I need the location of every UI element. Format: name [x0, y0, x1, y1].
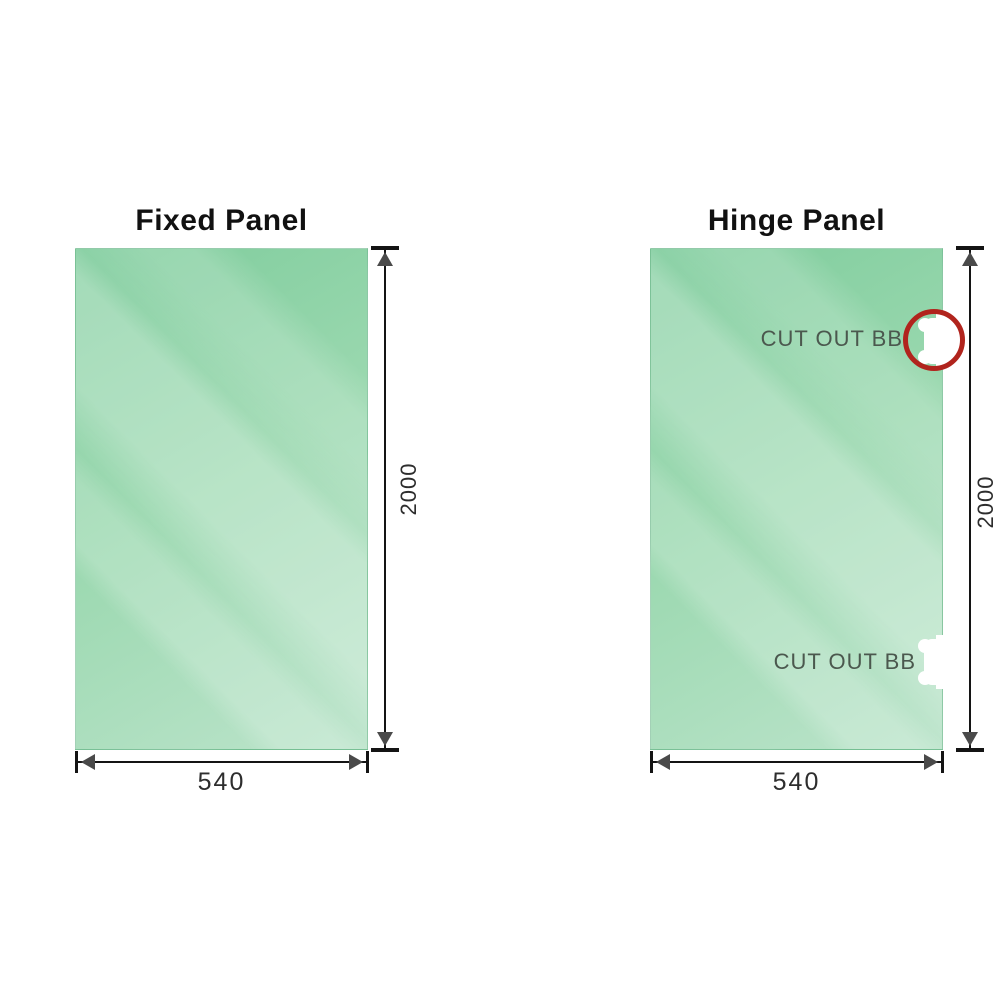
shower-panel-diagram: Fixed Panel 2000 540 Hinge Panel CUT OUT…: [0, 0, 1000, 1000]
hinge-height-dimension-value: 2000: [973, 474, 999, 530]
fixed-height-bottom-tick: [371, 748, 399, 752]
hinge-height-bottom-tick: [956, 748, 984, 752]
hinge-cutout-bottom: [918, 635, 944, 689]
fixed-panel-glass: [75, 248, 368, 750]
hinge-cutout-bottom-bump-upper: [918, 639, 932, 653]
fixed-height-top-tick: [371, 246, 399, 250]
cutout-label-bottom: CUT OUT BB: [706, 649, 916, 675]
cutout-highlight-ring-icon: [903, 309, 965, 371]
fixed-width-dimension-line: [77, 761, 367, 763]
hinge-cutout-bottom-bump-lower: [918, 671, 932, 685]
hinge-height-top-tick: [956, 246, 984, 250]
hinge-panel-title: Hinge Panel: [650, 203, 943, 239]
hinge-height-arrow-up-icon: [962, 252, 978, 266]
hinge-height-dimension-line: [969, 250, 971, 748]
fixed-height-arrow-down-icon: [377, 732, 393, 746]
hinge-width-dimension-value: 540: [650, 768, 943, 796]
fixed-width-dimension-value: 540: [75, 768, 368, 796]
fixed-panel-title: Fixed Panel: [75, 203, 368, 239]
cutout-label-top: CUT OUT BB: [693, 326, 903, 352]
fixed-height-dimension-line: [384, 250, 386, 748]
hinge-width-dimension-line: [652, 761, 942, 763]
hinge-height-arrow-down-icon: [962, 732, 978, 746]
fixed-height-arrow-up-icon: [377, 252, 393, 266]
fixed-height-dimension-value: 2000: [396, 461, 422, 517]
